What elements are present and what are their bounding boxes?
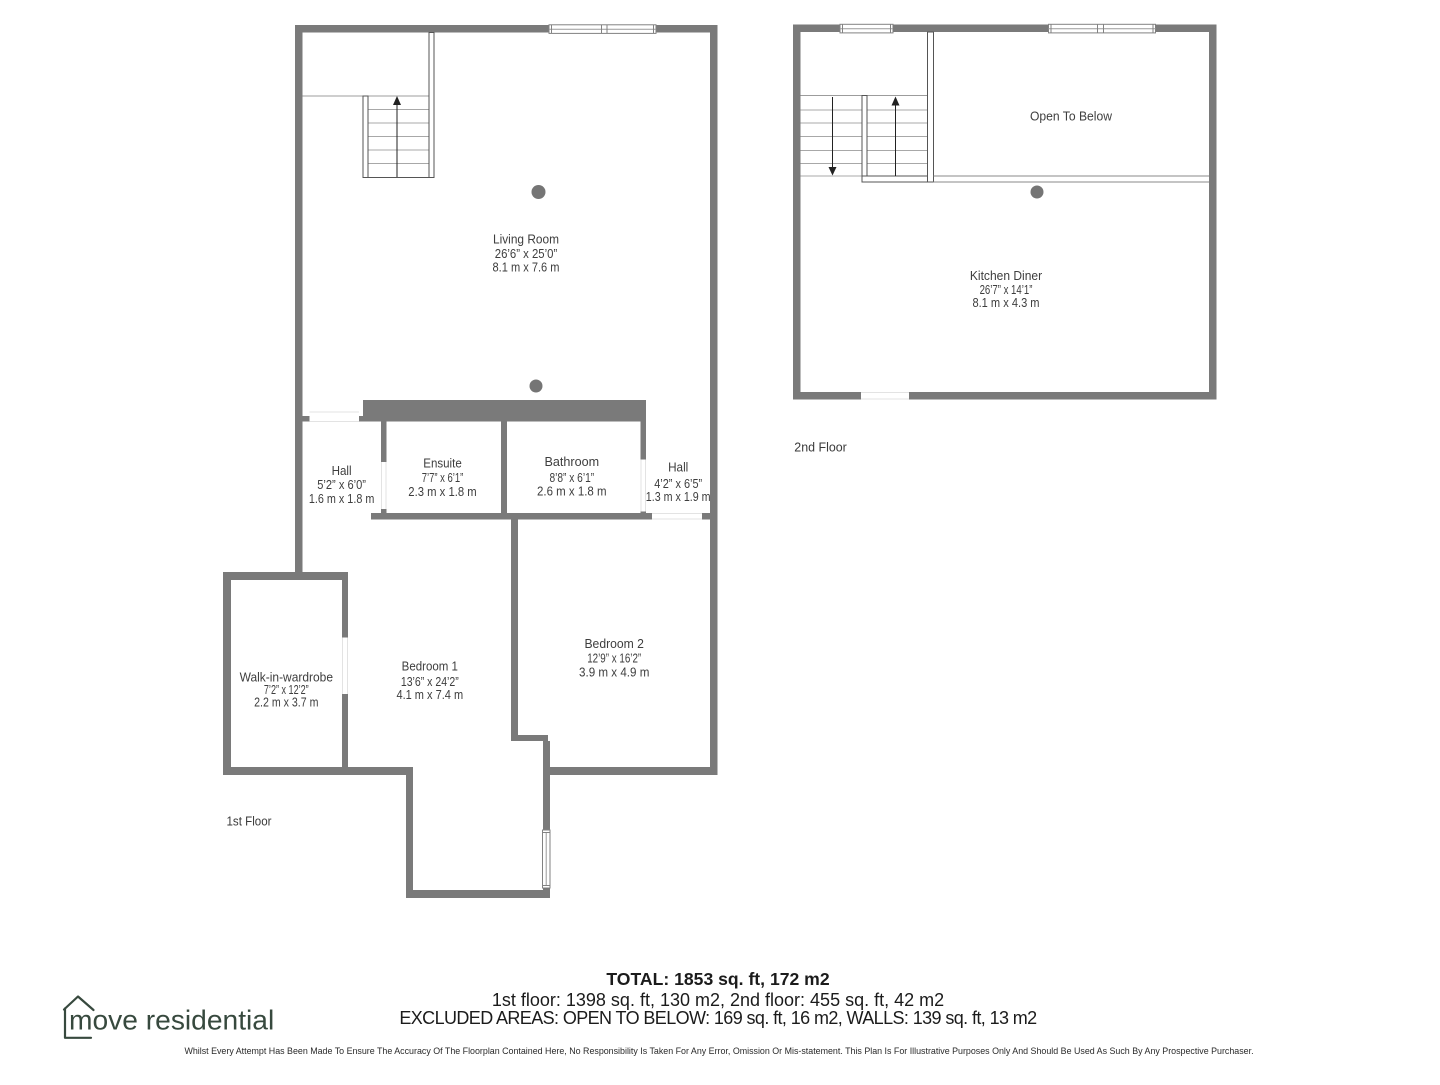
svg-text:8.1 m x 4.3 m: 8.1 m x 4.3 m (972, 295, 1039, 310)
svg-text:Bedroom 1: Bedroom 1 (402, 659, 458, 674)
svg-text:2.2 m x 3.7 m: 2.2 m x 3.7 m (254, 695, 318, 710)
svg-text:2.3 m x 1.8 m: 2.3 m x 1.8 m (408, 484, 476, 499)
svg-text:5’2” x 6’0”: 5’2” x 6’0” (317, 477, 366, 492)
svg-text:Bedroom 2: Bedroom 2 (584, 636, 644, 651)
svg-text:TOTAL: 1853 sq. ft, 172 m2: TOTAL: 1853 sq. ft, 172 m2 (606, 969, 829, 989)
svg-text:12’9” x 16’2”: 12’9” x 16’2” (587, 651, 641, 666)
svg-text:2.6 m x 1.8 m: 2.6 m x 1.8 m (537, 484, 607, 499)
svg-text:Ensuite: Ensuite (423, 456, 462, 471)
svg-text:1.6 m x 1.8 m: 1.6 m x 1.8 m (309, 491, 375, 506)
svg-text:8.1 m x 7.6 m: 8.1 m x 7.6 m (493, 260, 560, 275)
svg-text:Kitchen Diner: Kitchen Diner (970, 268, 1043, 283)
svg-text:1.3 m x 1.9 m: 1.3 m x 1.9 m (646, 489, 711, 504)
svg-text:EXCLUDED AREAS: OPEN TO BELOW:: EXCLUDED AREAS: OPEN TO BELOW: 169 sq. f… (399, 1008, 1037, 1028)
svg-text:Open To Below: Open To Below (1030, 108, 1113, 123)
svg-text:Hall: Hall (668, 460, 688, 475)
svg-text:Bathroom: Bathroom (544, 454, 599, 469)
svg-text:Whilst Every Attempt Has Been: Whilst Every Attempt Has Been Made To En… (184, 1046, 1253, 1056)
svg-text:2nd Floor: 2nd Floor (794, 440, 847, 455)
svg-text:move residential: move residential (69, 1004, 274, 1036)
svg-text:Hall: Hall (332, 463, 352, 478)
svg-text:Living Room: Living Room (493, 232, 559, 247)
svg-text:7’7” x 6’1”: 7’7” x 6’1” (422, 470, 464, 485)
svg-text:1st Floor: 1st Floor (227, 814, 273, 829)
svg-text:3.9 m x 4.9 m: 3.9 m x 4.9 m (579, 665, 649, 680)
svg-text:1st floor: 1398 sq. ft, 130 m2: 1st floor: 1398 sq. ft, 130 m2, 2nd floo… (492, 990, 944, 1010)
svg-text:4.1 m x 7.4 m: 4.1 m x 7.4 m (396, 687, 463, 702)
